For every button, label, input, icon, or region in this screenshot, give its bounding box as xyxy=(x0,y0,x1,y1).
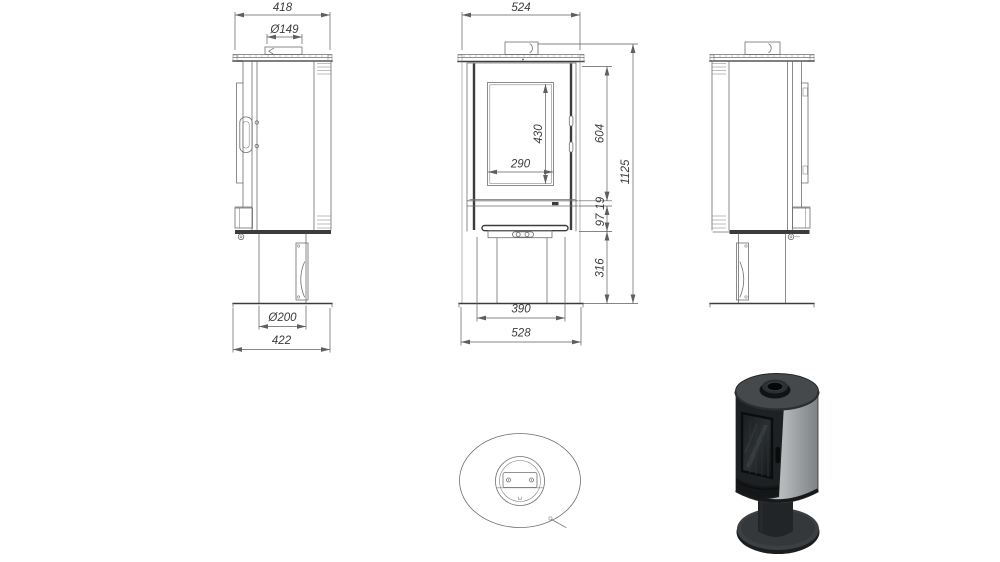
stove-body-front xyxy=(462,62,580,304)
stove-body-side-right xyxy=(712,61,810,240)
body-bottom-band xyxy=(235,230,331,234)
bottom-ring xyxy=(482,226,568,231)
column-highlight xyxy=(761,500,763,532)
top-view xyxy=(460,434,581,528)
top-plate-front xyxy=(458,55,584,62)
vent-slats-top-right xyxy=(712,64,726,75)
dim-label-430: 430 xyxy=(533,124,545,144)
base-plate-side xyxy=(233,304,332,308)
hinge-bottom xyxy=(569,142,573,152)
body-bottom-band-right xyxy=(730,230,810,234)
door-handle-top xyxy=(549,517,566,528)
drawing-svg: 418 Ø149 xyxy=(0,0,1000,562)
top-plate-right xyxy=(710,55,814,62)
damper-control xyxy=(513,232,534,237)
pedestal-front xyxy=(497,238,547,303)
pedestal-right xyxy=(737,234,786,303)
dim-glass-width: 290 xyxy=(488,159,553,173)
dim-chain-right: 604 19 97 316 1125 xyxy=(538,44,638,304)
dim-label-524: 524 xyxy=(511,2,530,14)
dim-glass-height: 430 xyxy=(533,84,546,184)
dim-label-604: 604 xyxy=(595,124,607,143)
pedestal-side xyxy=(259,234,308,303)
door-handle-3d xyxy=(776,447,781,463)
dim-label-19: 19 xyxy=(595,196,607,209)
dim-pedestal-diameter: Ø200 xyxy=(259,306,306,330)
dim-label-200: Ø200 xyxy=(267,312,297,324)
flue-collar xyxy=(265,47,302,55)
stove-body-side xyxy=(235,61,331,240)
dim-label-418: 418 xyxy=(273,2,293,14)
dim-overall-width-front: 524 xyxy=(462,2,580,50)
hinge-pin xyxy=(238,234,244,240)
dim-label-316: 316 xyxy=(595,258,607,278)
vent-slats-bottom-right xyxy=(712,216,726,228)
dim-label-290: 290 xyxy=(510,159,531,171)
trim-band xyxy=(467,201,578,206)
top-plate-outline xyxy=(460,434,581,528)
side-view-left: 418 Ø149 xyxy=(233,2,332,353)
flue-collar-front xyxy=(505,42,538,55)
hinge-pin-right xyxy=(788,234,800,240)
flue-collar-right xyxy=(745,42,780,55)
flue-opening xyxy=(496,457,545,506)
technical-drawing-canvas: 418 Ø149 xyxy=(0,0,1000,562)
dim-label-528: 528 xyxy=(511,328,531,340)
glass-window-3d xyxy=(742,413,772,478)
dim-label-97: 97 xyxy=(595,213,607,226)
dim-label-390: 390 xyxy=(511,304,531,316)
vent-slats-top xyxy=(317,64,331,75)
dim-label-149: Ø149 xyxy=(269,24,299,36)
front-view: 524 xyxy=(458,2,638,346)
hinge-top xyxy=(569,116,573,126)
dim-lower-body-width: 390 xyxy=(477,237,565,322)
side-view-right xyxy=(710,42,814,307)
dim-label-1125: 1125 xyxy=(620,159,632,184)
product-render-3d xyxy=(736,374,820,555)
vent-slats-bottom xyxy=(317,216,331,228)
top-plate xyxy=(233,55,332,62)
dim-label-422: 422 xyxy=(272,335,292,347)
base-plate-right xyxy=(710,304,814,308)
pedestal-column-3d xyxy=(758,498,793,537)
dim-flue-diameter: Ø149 xyxy=(267,24,302,44)
